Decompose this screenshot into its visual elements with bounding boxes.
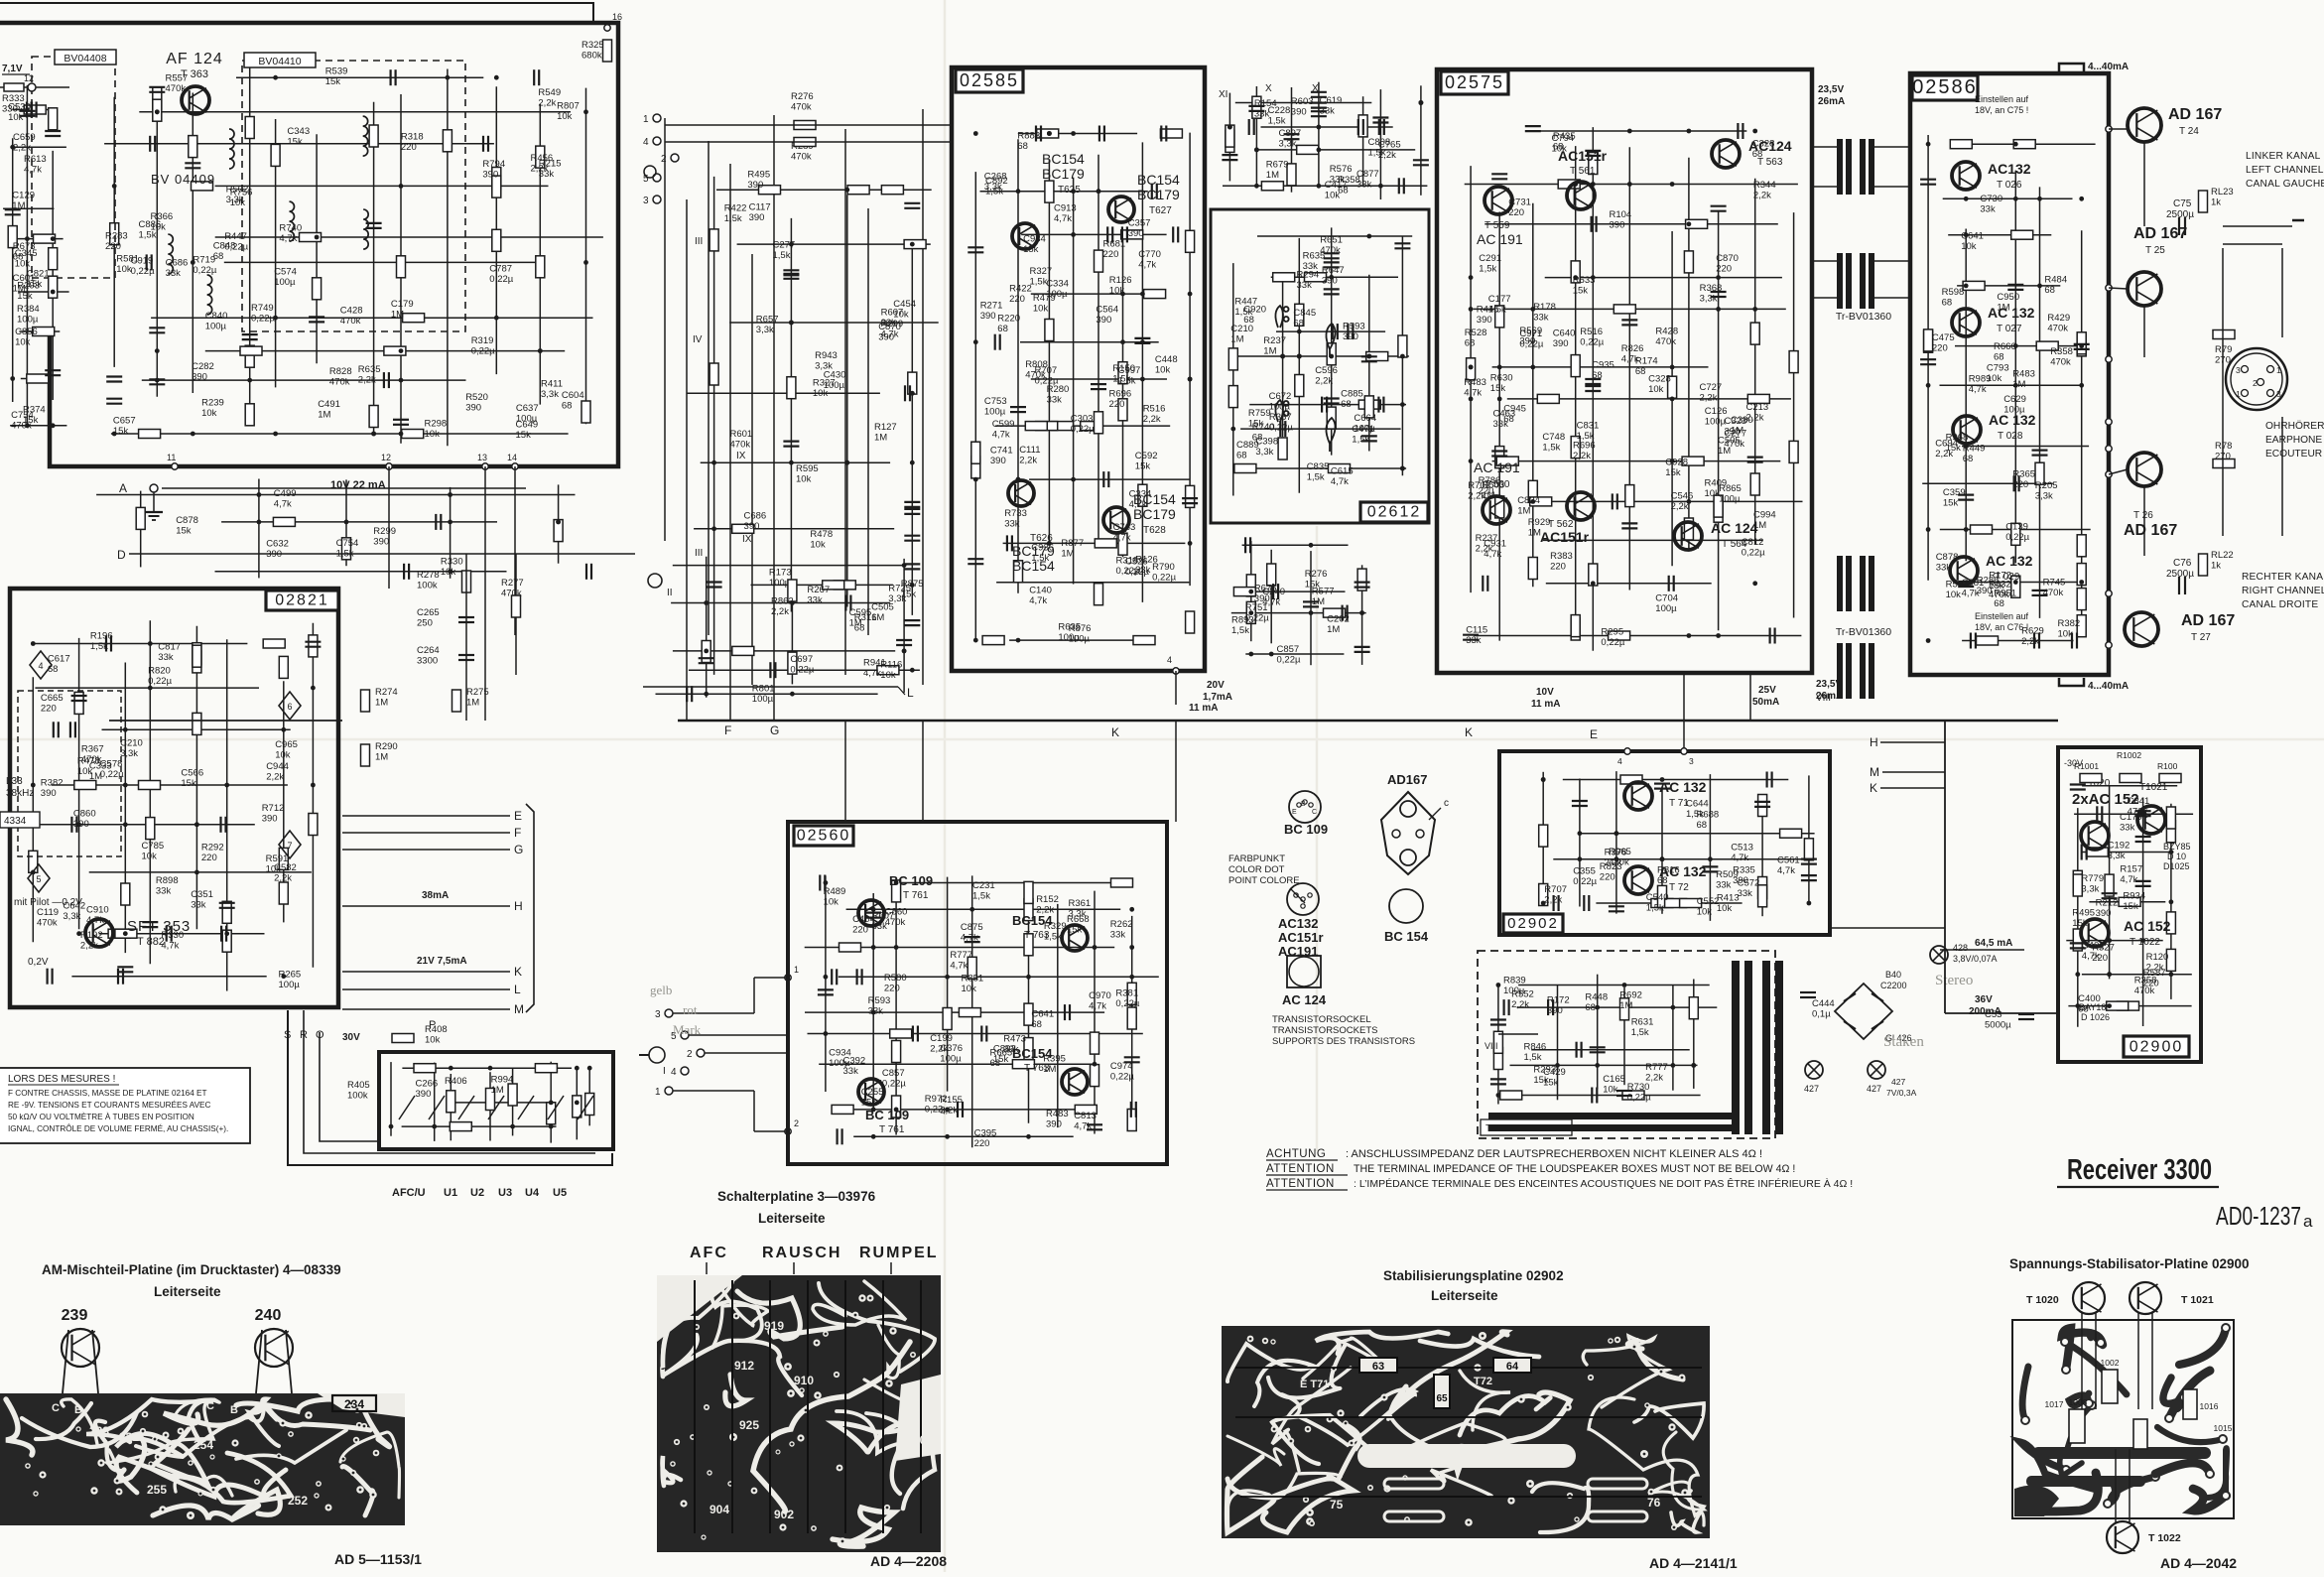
svg-text:10k: 10k <box>142 852 158 862</box>
svg-text:427: 427 <box>1867 1084 1881 1094</box>
svg-text:390: 390 <box>990 456 1006 466</box>
svg-text:R591: R591 <box>266 854 289 864</box>
svg-text:10k: 10k <box>1697 906 1713 917</box>
svg-text:C192: C192 <box>2108 840 2130 851</box>
svg-text:390: 390 <box>41 788 57 799</box>
svg-text:4,7k: 4,7k <box>961 932 978 943</box>
svg-text:gelb: gelb <box>650 983 672 997</box>
svg-text:IX: IX <box>736 451 746 461</box>
svg-text:470k: 470k <box>2043 588 2064 598</box>
svg-text:T 27: T 27 <box>2191 632 2211 643</box>
svg-text:R934: R934 <box>2123 890 2145 901</box>
svg-text:3,3k: 3,3k <box>2035 491 2053 502</box>
svg-text:14: 14 <box>507 453 517 462</box>
svg-text:Spannungs-Stabilisator-Platine: Spannungs-Stabilisator-Platine 02900 <box>2009 1256 2250 1271</box>
svg-text:R448: R448 <box>1585 992 1608 1003</box>
svg-text:0,22µ: 0,22µ <box>489 274 513 285</box>
svg-text:390: 390 <box>1128 228 1144 239</box>
svg-text:R478: R478 <box>77 756 100 767</box>
svg-text:C813: C813 <box>1074 1111 1097 1121</box>
svg-text:C741: C741 <box>990 446 1013 457</box>
svg-text:3,3k: 3,3k <box>1700 294 1718 305</box>
svg-text:C444: C444 <box>1812 998 1835 1009</box>
svg-text:C997: C997 <box>1118 365 1141 376</box>
svg-text:1: 1 <box>2276 365 2281 375</box>
svg-text:63: 63 <box>1372 1361 1384 1373</box>
svg-text:R271: R271 <box>980 301 1003 312</box>
svg-text:C637: C637 <box>516 403 539 414</box>
svg-text:T 563: T 563 <box>1757 157 1783 168</box>
svg-text:2,2k: 2,2k <box>940 1106 958 1117</box>
svg-text:21V 7,5mA: 21V 7,5mA <box>417 956 467 967</box>
svg-text:33k: 33k <box>807 594 823 605</box>
svg-text:C491: C491 <box>318 399 340 410</box>
svg-text:64,5 mA: 64,5 mA <box>1975 938 2012 949</box>
svg-text:C240: C240 <box>1262 587 1285 597</box>
svg-text:C265: C265 <box>417 607 440 618</box>
svg-text:T 559: T 559 <box>1485 220 1510 231</box>
svg-text:TRANSISTORSOCKEL: TRANSISTORSOCKEL <box>1272 1014 1371 1025</box>
svg-text:R413: R413 <box>1717 892 1740 903</box>
svg-text:R327: R327 <box>1030 266 1053 277</box>
svg-text:T 72: T 72 <box>1669 882 1689 893</box>
svg-text:R631: R631 <box>1631 1016 1654 1027</box>
svg-text:10k: 10k <box>8 112 24 123</box>
svg-text:1M: 1M <box>1263 346 1276 357</box>
svg-text:50mA: 50mA <box>1752 697 1779 708</box>
svg-text:BC154: BC154 <box>1137 172 1180 188</box>
svg-text:AC 132: AC 132 <box>1659 863 1707 879</box>
svg-text:R358: R358 <box>2134 976 2157 986</box>
svg-text:30V: 30V <box>342 1032 360 1043</box>
svg-text:10k: 10k <box>1705 488 1721 499</box>
svg-text:C210: C210 <box>120 737 143 748</box>
svg-text:2,2k: 2,2k <box>2146 962 2164 973</box>
svg-text:0,2V: 0,2V <box>28 957 49 968</box>
svg-text:R851: R851 <box>962 974 984 985</box>
svg-text:4: 4 <box>671 1067 677 1078</box>
svg-text:390: 390 <box>1547 1005 1563 1016</box>
svg-text:III: III <box>695 548 703 559</box>
svg-text:R647: R647 <box>1322 265 1345 276</box>
svg-text:T 882: T 882 <box>137 936 165 948</box>
svg-text:AC132: AC132 <box>1988 161 2031 177</box>
svg-text:AFC/U: AFC/U <box>392 1187 426 1199</box>
svg-text:390: 390 <box>1343 331 1358 342</box>
svg-text:220: 220 <box>1103 249 1119 260</box>
svg-text:R429: R429 <box>2047 313 2070 324</box>
svg-text:POINT COLORE: POINT COLORE <box>1228 875 1300 886</box>
svg-text:R319: R319 <box>471 335 494 346</box>
svg-text:15k: 15k <box>1573 286 1589 297</box>
svg-text:3,3k: 3,3k <box>815 361 833 372</box>
svg-text:1,5k: 1,5k <box>1479 264 1496 275</box>
svg-text:68: 68 <box>1963 454 1974 464</box>
svg-text:68: 68 <box>1635 366 1646 377</box>
svg-text:a: a <box>2303 1212 2313 1231</box>
svg-text:C831: C831 <box>1577 421 1600 432</box>
svg-text:T 763: T 763 <box>1024 1063 1050 1074</box>
svg-text:R893: R893 <box>1231 615 1254 626</box>
svg-text:1,5k: 1,5k <box>1686 809 1704 820</box>
svg-text:1: 1 <box>2236 389 2241 399</box>
svg-text:R707: R707 <box>1035 365 1058 376</box>
svg-text:0,22µ: 0,22µ <box>148 676 172 687</box>
svg-text:: L’IMPÉDANCE TERMINALE DES: : L’IMPÉDANCE TERMINALE DES ENCEINTES AC… <box>1354 1177 1853 1190</box>
svg-text:BC 109: BC 109 <box>1284 822 1328 837</box>
svg-text:220: 220 <box>884 984 900 994</box>
svg-text:RL23: RL23 <box>2211 187 2234 197</box>
svg-text:C291: C291 <box>1479 253 1501 264</box>
svg-text:2500µ: 2500µ <box>2166 209 2194 220</box>
svg-text:1M: 1M <box>1619 1000 1632 1011</box>
svg-text:50 kΩ/V OU VOLTMÈTRE À TUBES E: 50 kΩ/V OU VOLTMÈTRE À TUBES EN POSITION <box>8 1112 194 1121</box>
svg-text:250: 250 <box>417 618 433 629</box>
svg-text:T 26: T 26 <box>2133 510 2153 521</box>
svg-text:4,7k: 4,7k <box>1777 865 1795 876</box>
svg-text:C334: C334 <box>1046 279 1069 290</box>
svg-text:R576: R576 <box>1330 164 1353 175</box>
svg-text:C526: C526 <box>1125 557 1148 568</box>
svg-text:15k: 15k <box>113 426 129 437</box>
svg-text:10k: 10k <box>2058 629 2074 640</box>
svg-text:4,7k: 4,7k <box>881 329 899 339</box>
svg-text:R173: R173 <box>769 567 792 578</box>
svg-text:R157: R157 <box>2120 864 2142 875</box>
svg-text:T 1022: T 1022 <box>2148 1532 2181 1544</box>
svg-text:T 363: T 363 <box>181 68 208 80</box>
svg-text:R877: R877 <box>1061 538 1084 549</box>
svg-text:912: 912 <box>734 1359 754 1373</box>
svg-text:U2: U2 <box>470 1187 484 1199</box>
svg-text:390: 390 <box>1610 220 1625 231</box>
svg-text:R344: R344 <box>1753 180 1776 191</box>
svg-text:2,2k: 2,2k <box>1700 392 1718 403</box>
svg-text:R290: R290 <box>375 741 398 752</box>
svg-text:M: M <box>1870 765 1879 779</box>
svg-text:10k: 10k <box>116 264 132 275</box>
svg-text:2,2k: 2,2k <box>930 1043 948 1054</box>
svg-text:C202: C202 <box>1327 614 1350 625</box>
svg-text:R520: R520 <box>465 392 488 403</box>
svg-text:10k: 10k <box>425 1035 441 1046</box>
svg-text:X: X <box>1265 83 1272 94</box>
svg-text:4,7k: 4,7k <box>1331 476 1349 487</box>
svg-text:BV04410: BV04410 <box>258 56 301 67</box>
svg-text:2,2k: 2,2k <box>1753 191 1771 201</box>
svg-text:68: 68 <box>1592 370 1603 381</box>
svg-text:15k: 15k <box>1135 461 1151 472</box>
svg-text:4,7k: 4,7k <box>1074 1120 1092 1131</box>
svg-text:901: 901 <box>913 1433 933 1447</box>
svg-text:C129: C129 <box>12 190 35 200</box>
svg-text:C727: C727 <box>1700 382 1723 393</box>
svg-text:1k: 1k <box>2211 197 2221 208</box>
svg-text:C945: C945 <box>1503 403 1526 414</box>
svg-text:Mark: Mark <box>673 1022 702 1037</box>
svg-text:220: 220 <box>105 241 121 252</box>
svg-text:R495: R495 <box>2072 907 2095 918</box>
svg-text:428: 428 <box>1953 943 1968 953</box>
svg-text:AC151r: AC151r <box>1278 930 1324 945</box>
svg-text:AM-Mischteil-Platine (im Druck: AM-Mischteil-Platine (im Drucktaster) 4—… <box>42 1262 341 1277</box>
svg-text:1M: 1M <box>2012 379 2025 390</box>
svg-text:4,7k: 4,7k <box>1138 260 1156 271</box>
svg-text:AD167: AD167 <box>1387 772 1427 787</box>
svg-text:15k: 15k <box>1665 467 1681 478</box>
svg-text:11 mA: 11 mA <box>1189 703 1218 714</box>
svg-text:R601: R601 <box>730 429 753 440</box>
svg-text:C794: C794 <box>1552 133 1575 144</box>
svg-text:220: 220 <box>974 1138 990 1149</box>
svg-text:R483: R483 <box>1464 377 1486 388</box>
svg-text:R929: R929 <box>1528 517 1551 528</box>
svg-text:C592: C592 <box>1135 451 1158 461</box>
svg-text:C644: C644 <box>1686 799 1709 810</box>
svg-text:1,5k: 1,5k <box>90 641 108 652</box>
svg-text:R368: R368 <box>1700 283 1723 294</box>
svg-text:C76: C76 <box>2173 558 2192 569</box>
svg-text:R679: R679 <box>1266 159 1289 170</box>
svg-text:2,2k: 2,2k <box>358 374 376 385</box>
svg-text:R630: R630 <box>1490 373 1513 384</box>
svg-text:F CONTRE CHASSIS, MASSE DE PLA: F CONTRE CHASSIS, MASSE DE PLATINE 02164… <box>8 1089 207 1098</box>
svg-text:4,7k: 4,7k <box>1484 549 1501 560</box>
svg-text:C629: C629 <box>2003 394 2026 405</box>
svg-text:68: 68 <box>1994 352 2004 363</box>
svg-text:AD 5—1153/1: AD 5—1153/1 <box>334 1551 422 1567</box>
svg-text:C974: C974 <box>1110 1061 1133 1072</box>
svg-text:BC179: BC179 <box>1042 166 1085 182</box>
svg-text:1008: 1008 <box>2069 1397 2088 1407</box>
svg-text:15k: 15k <box>1533 1075 1549 1086</box>
svg-text:H: H <box>1870 735 1878 749</box>
svg-text:T 1022: T 1022 <box>2130 937 2160 948</box>
svg-text:R696: R696 <box>1109 389 1132 400</box>
svg-text:0,22µ: 0,22µ <box>790 665 814 676</box>
svg-text:7,1V: 7,1V <box>2 64 23 74</box>
svg-text:III: III <box>695 236 703 247</box>
svg-text:BC154: BC154 <box>1042 151 1085 167</box>
svg-text:XI: XI <box>1219 89 1227 100</box>
svg-text:C697: C697 <box>790 654 813 665</box>
svg-text:R456: R456 <box>531 153 554 164</box>
svg-text:390: 390 <box>1322 276 1338 287</box>
svg-text:10k: 10k <box>824 896 839 907</box>
svg-text:C505: C505 <box>871 601 894 612</box>
svg-text:B: B <box>230 1404 238 1416</box>
svg-text:2: 2 <box>794 1118 799 1128</box>
svg-text:68: 68 <box>854 622 865 633</box>
svg-text:C965: C965 <box>275 739 298 750</box>
svg-text:220: 220 <box>41 704 57 715</box>
svg-text:T 763: T 763 <box>1024 930 1050 941</box>
svg-text:1,5k: 1,5k <box>1118 376 1136 387</box>
svg-text:LORS DES MESURES !: LORS DES MESURES ! <box>8 1074 115 1085</box>
svg-text:BC 109: BC 109 <box>889 873 933 888</box>
svg-text:Leiterseite: Leiterseite <box>1431 1288 1498 1303</box>
svg-text:G: G <box>770 723 779 737</box>
svg-text:R552: R552 <box>1511 988 1534 999</box>
svg-text:68: 68 <box>13 252 24 263</box>
svg-text:1,5k: 1,5k <box>1030 277 1048 288</box>
svg-text:220: 220 <box>1600 871 1615 882</box>
svg-text:R502: R502 <box>226 184 249 195</box>
svg-text:1016: 1016 <box>2200 1401 2219 1411</box>
svg-text:C566: C566 <box>181 767 203 778</box>
svg-text:470k: 470k <box>2050 356 2071 367</box>
svg-text:4,7k: 4,7k <box>1464 388 1482 399</box>
svg-text:C686: C686 <box>744 511 767 522</box>
svg-text:U5: U5 <box>553 1187 567 1199</box>
svg-text:239: 239 <box>62 1307 88 1324</box>
svg-text:R580: R580 <box>884 973 907 984</box>
svg-text:4,7k: 4,7k <box>1969 384 1987 395</box>
svg-text:C641: C641 <box>1961 231 1984 242</box>
svg-text:390: 390 <box>1096 315 1111 326</box>
svg-text:RL22: RL22 <box>2211 550 2234 561</box>
svg-text:R745: R745 <box>2043 577 2066 588</box>
svg-text:BC154: BC154 <box>1012 1046 1053 1061</box>
svg-text:R516: R516 <box>1143 403 1166 414</box>
svg-text:0,22µ: 0,22µ <box>193 265 216 276</box>
svg-text:10k: 10k <box>77 766 93 777</box>
svg-text:3,3k: 3,3k <box>1069 909 1087 920</box>
svg-text:AC 132: AC 132 <box>1988 305 2035 321</box>
svg-text:C619: C619 <box>1320 95 1343 106</box>
svg-text:0,22µ: 0,22µ <box>1071 424 1095 435</box>
svg-text:C913: C913 <box>1054 202 1077 213</box>
svg-text:10k: 10k <box>1987 373 2002 384</box>
svg-text:T 560: T 560 <box>1485 479 1510 490</box>
svg-text:390: 390 <box>192 372 207 383</box>
svg-text:R712: R712 <box>262 803 285 814</box>
svg-text:R100: R100 <box>2157 761 2178 771</box>
svg-text:2,2k: 2,2k <box>1511 999 1529 1010</box>
svg-text:3,3k: 3,3k <box>120 748 138 759</box>
svg-text:TRANSISTORSOCKETS: TRANSISTORSOCKETS <box>1272 1025 1377 1036</box>
svg-text:R292: R292 <box>201 843 224 854</box>
svg-text:R593: R593 <box>1343 322 1365 332</box>
svg-text:R382: R382 <box>41 778 64 789</box>
svg-text:AD0-1237: AD0-1237 <box>2216 1201 2301 1231</box>
svg-text:R495: R495 <box>747 169 770 180</box>
svg-text:C730: C730 <box>1980 194 2002 204</box>
svg-text:D: D <box>117 548 126 562</box>
svg-text:5: 5 <box>36 874 41 884</box>
svg-text:2,2k: 2,2k <box>771 606 789 617</box>
svg-text:470k: 470k <box>791 102 812 113</box>
svg-text:220: 220 <box>1009 294 1025 305</box>
svg-text:0,22µ: 0,22µ <box>1601 637 1624 648</box>
svg-text:15k: 15k <box>1305 580 1321 591</box>
svg-text:R277: R277 <box>501 578 524 589</box>
svg-text:1,5k: 1,5k <box>773 250 791 261</box>
svg-text:33k: 33k <box>158 652 174 663</box>
svg-text:Einstellen auf: Einstellen auf <box>1975 94 2029 104</box>
svg-text:1M: 1M <box>1312 596 1325 607</box>
svg-text:C694: C694 <box>1935 438 1958 449</box>
svg-text:R807: R807 <box>557 101 580 112</box>
svg-text:1,5k: 1,5k <box>724 213 742 224</box>
svg-text:100µ: 100µ <box>1719 494 1741 505</box>
svg-text:470k: 470k <box>1655 336 1676 347</box>
svg-text:C840: C840 <box>205 311 228 322</box>
svg-text:68: 68 <box>2044 285 2055 296</box>
svg-text:10k: 10k <box>1946 590 1962 600</box>
svg-text:OHRHÖRER: OHRHÖRER <box>2265 420 2324 432</box>
svg-text:390: 390 <box>1477 315 1492 326</box>
svg-text:38kHz: 38kHz <box>6 788 34 799</box>
svg-text:2,2k: 2,2k <box>2021 636 2039 647</box>
svg-text:AD 4—2208: AD 4—2208 <box>870 1553 947 1569</box>
svg-text:65: 65 <box>1436 1393 1448 1404</box>
svg-text:11: 11 <box>167 453 176 462</box>
svg-text:0,22µ: 0,22µ <box>1125 567 1149 578</box>
svg-text:AC 152: AC 152 <box>2124 918 2171 934</box>
svg-text:R378: R378 <box>1605 848 1627 858</box>
svg-text:C754: C754 <box>11 410 34 421</box>
svg-text:1: 1 <box>655 1087 661 1098</box>
svg-text:R361: R361 <box>1069 898 1092 909</box>
svg-text:390: 390 <box>1291 107 1307 118</box>
svg-text:C599: C599 <box>992 419 1015 430</box>
svg-text:3: 3 <box>2236 365 2241 375</box>
svg-text:R635: R635 <box>358 364 381 375</box>
svg-text:C848: C848 <box>213 241 236 252</box>
svg-text:427: 427 <box>1804 1084 1819 1094</box>
svg-text:C928: C928 <box>1665 457 1688 467</box>
svg-text:A: A <box>119 481 127 495</box>
svg-text:100µ: 100µ <box>752 694 774 705</box>
svg-text:T625: T625 <box>1058 185 1081 196</box>
svg-text:2,2k: 2,2k <box>1315 375 1333 386</box>
svg-text:1017: 1017 <box>2045 1399 2064 1409</box>
svg-text:BC179: BC179 <box>1012 543 1055 559</box>
svg-text:T 25: T 25 <box>2145 245 2165 256</box>
svg-text:COLOR DOT: COLOR DOT <box>1228 864 1285 875</box>
svg-text:68: 68 <box>1293 319 1304 329</box>
svg-text:427: 427 <box>1891 1077 1905 1087</box>
svg-text:AC 191: AC 191 <box>1477 231 1523 247</box>
svg-text:390: 390 <box>747 180 763 191</box>
svg-text:R528: R528 <box>1465 328 1487 338</box>
svg-text:T627: T627 <box>1149 205 1172 216</box>
svg-text:C179: C179 <box>391 299 414 310</box>
svg-text:C857: C857 <box>882 1068 905 1079</box>
svg-text:3,3k: 3,3k <box>1279 139 1297 150</box>
svg-text:R327: R327 <box>813 377 836 388</box>
svg-text:L33: L33 <box>6 776 23 787</box>
svg-text:R707: R707 <box>1544 884 1567 895</box>
svg-text:IGNAL, CONTRÔLE DE VOLUME FERM: IGNAL, CONTRÔLE DE VOLUME FERMÉ, AU CHAS… <box>8 1123 228 1133</box>
svg-text:C111: C111 <box>1019 445 1040 456</box>
svg-text:5000µ: 5000µ <box>1985 1020 2011 1031</box>
svg-text:T72: T72 <box>1474 1376 1492 1387</box>
svg-text:390: 390 <box>744 521 760 532</box>
svg-text:BZY85: BZY85 <box>2163 842 2191 852</box>
svg-text:FARBPUNKT: FARBPUNKT <box>1228 854 1285 864</box>
svg-text:10k: 10k <box>880 670 896 681</box>
svg-text:LEFT CHANNEL: LEFT CHANNEL <box>2246 165 2324 176</box>
svg-text:C115: C115 <box>1466 624 1487 635</box>
svg-text:SUPPORTS DES TRANSISTORS: SUPPORTS DES TRANSISTORS <box>1272 1036 1415 1047</box>
svg-text:390: 390 <box>749 212 765 223</box>
svg-text:AD 4—2042: AD 4—2042 <box>2160 1555 2237 1571</box>
svg-text:Tr-BV01360: Tr-BV01360 <box>1836 626 1891 638</box>
svg-text:T 761: T 761 <box>903 890 929 901</box>
svg-text:C817: C817 <box>158 642 181 653</box>
